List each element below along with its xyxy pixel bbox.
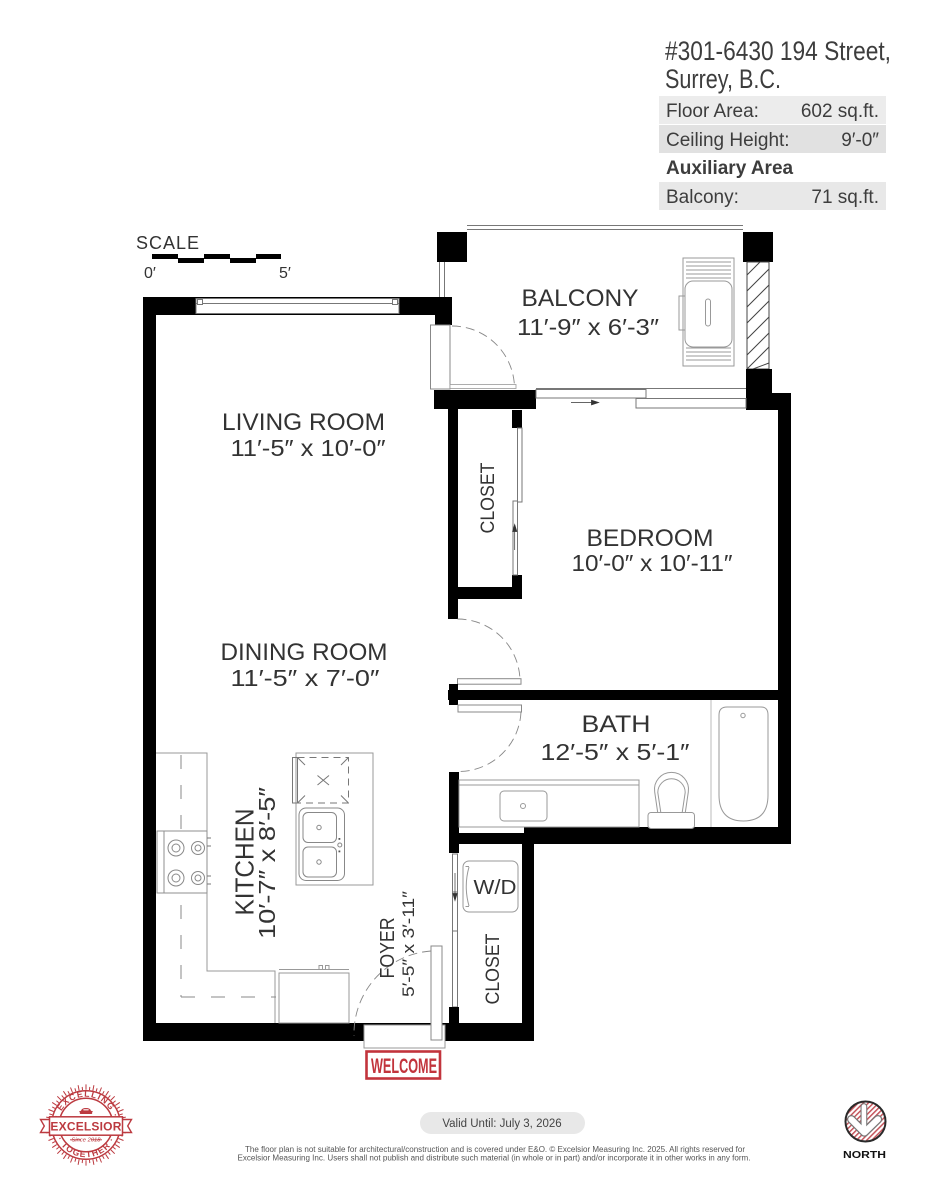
- svg-text:NORTH: NORTH: [843, 1149, 886, 1161]
- svg-text:EXCELSIOR: EXCELSIOR: [50, 1119, 121, 1133]
- svg-text:CLOSET: CLOSET: [483, 933, 504, 1004]
- svg-text:BATH: BATH: [582, 711, 651, 738]
- svg-text:Excelsior Measuring Inc. Users: Excelsior Measuring Inc. Users shall not…: [238, 1154, 751, 1163]
- svg-text:· EXCELLING ·: · EXCELLING ·: [51, 1089, 121, 1119]
- svg-text:10′-0″ x 10′-11″: 10′-0″ x 10′-11″: [572, 550, 733, 576]
- svg-text:BALCONY: BALCONY: [522, 285, 639, 312]
- svg-text:Surrey, B.C.: Surrey, B.C.: [665, 64, 781, 94]
- svg-text:BEDROOM: BEDROOM: [587, 525, 714, 552]
- svg-text:11′-9″ x 6′-3″: 11′-9″ x 6′-3″: [517, 314, 659, 340]
- svg-text:9′-0″: 9′-0″: [841, 130, 879, 151]
- svg-text:Valid Until: July 3, 2026: Valid Until: July 3, 2026: [442, 1118, 561, 1130]
- svg-text:5′-5″ x 3′-11″: 5′-5″ x 3′-11″: [399, 891, 418, 997]
- svg-text:11′-5″ x 7′-0″: 11′-5″ x 7′-0″: [231, 665, 380, 691]
- svg-text:71 sq.ft.: 71 sq.ft.: [811, 187, 879, 208]
- svg-text:5′: 5′: [279, 265, 291, 282]
- svg-text:SCALE: SCALE: [136, 233, 200, 253]
- svg-text:DINING ROOM: DINING ROOM: [221, 639, 388, 666]
- svg-text:12′-5″ x 5′-1″: 12′-5″ x 5′-1″: [541, 739, 690, 765]
- svg-text:Ceiling Height:: Ceiling Height:: [666, 130, 790, 151]
- svg-text:W/D: W/D: [474, 877, 517, 899]
- svg-text:LIVING ROOM: LIVING ROOM: [222, 409, 385, 436]
- svg-text:602 sq.ft.: 602 sq.ft.: [801, 101, 879, 122]
- svg-text:10′-7″ x 8′-5″: 10′-7″ x 8′-5″: [254, 787, 280, 939]
- svg-text:WELCOME: WELCOME: [371, 1055, 437, 1078]
- svg-text:#301-6430 194 Street,: #301-6430 194 Street,: [665, 36, 891, 66]
- svg-text:Auxiliary Area: Auxiliary Area: [666, 158, 794, 179]
- svg-text:Since 2018: Since 2018: [71, 1138, 101, 1144]
- svg-text:Floor Area:: Floor Area:: [666, 101, 759, 122]
- svg-text:0′: 0′: [144, 265, 156, 282]
- svg-text:FOYER: FOYER: [377, 918, 399, 979]
- svg-text:Balcony:: Balcony:: [666, 187, 739, 208]
- svg-text:CLOSET: CLOSET: [478, 462, 499, 533]
- svg-text:11′-5″ x 10′-0″: 11′-5″ x 10′-0″: [231, 435, 386, 461]
